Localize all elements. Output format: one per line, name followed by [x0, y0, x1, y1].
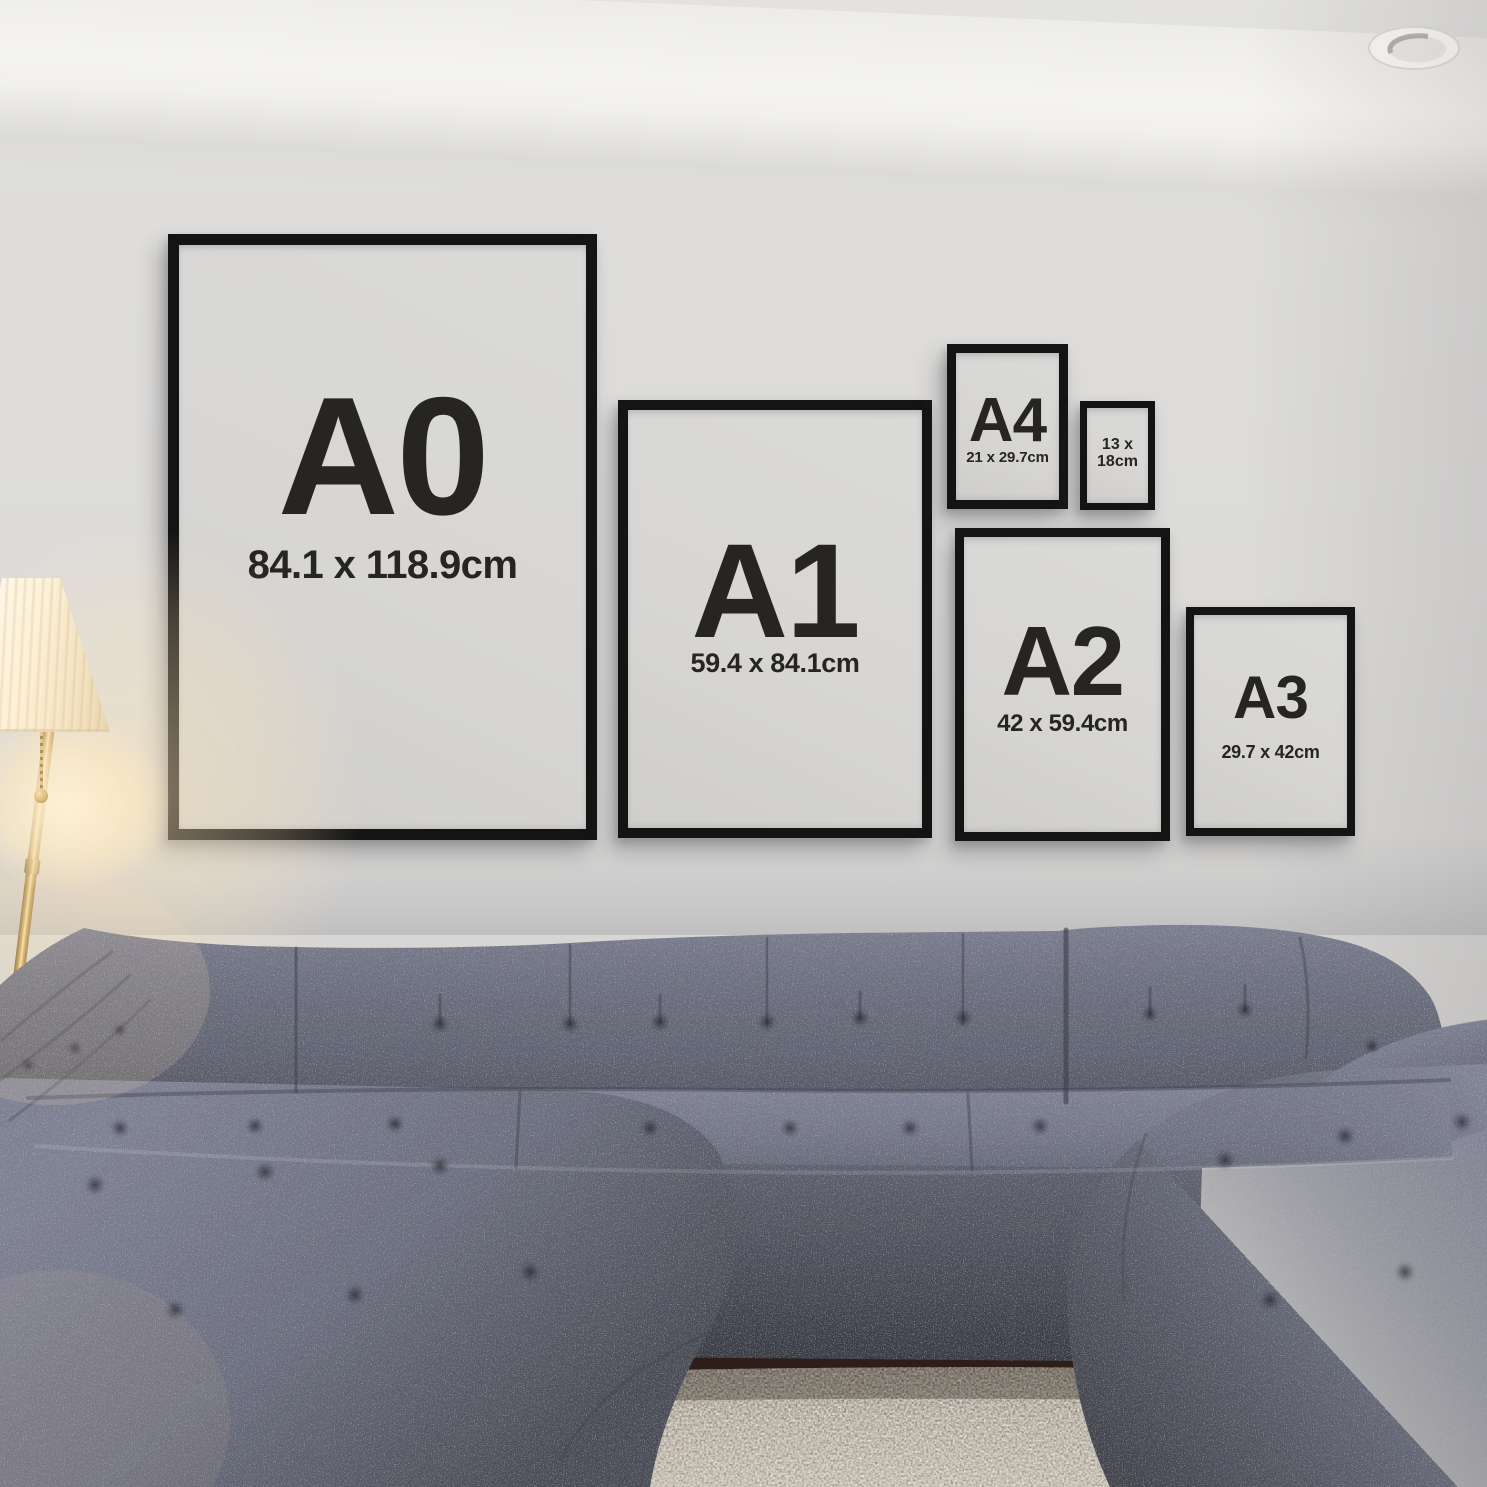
living-room-scene: A0 84.1 x 118.9cm A1 59.4 x 84.1cm A4 21…	[0, 0, 1487, 1487]
sectional-sofa-and-rug	[0, 0, 1487, 1487]
